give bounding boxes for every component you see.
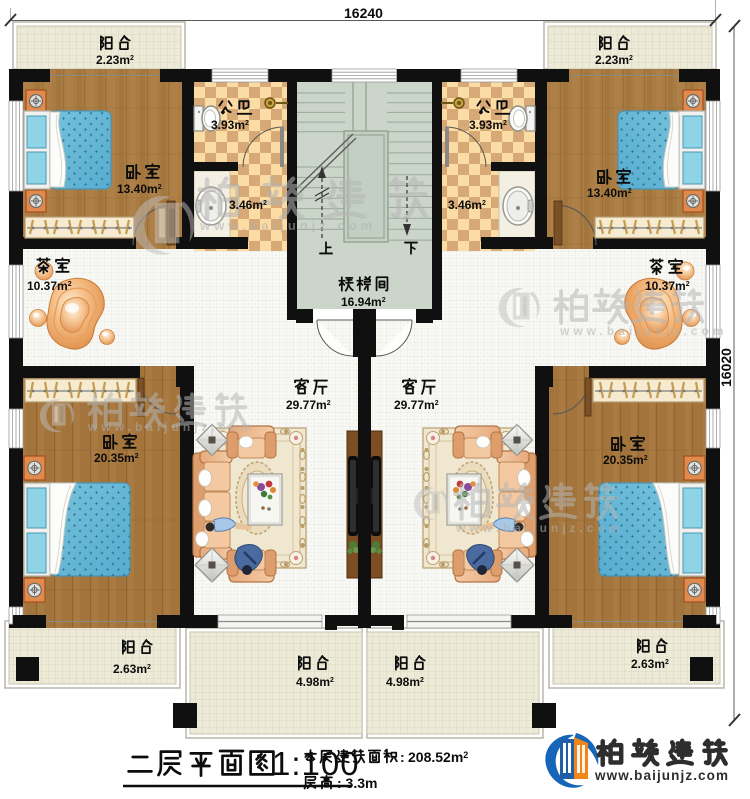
svg-text:2.63m2: 2.63m2 bbox=[631, 657, 669, 671]
svg-text:29.77m2: 29.77m2 bbox=[394, 398, 439, 412]
svg-text:10.37m2: 10.37m2 bbox=[645, 279, 690, 293]
svg-text:www.baijunjz.com: www.baijunjz.com bbox=[594, 768, 729, 783]
svg-text:www.baijunjz.com: www.baijunjz.com bbox=[559, 324, 728, 338]
svg-text:16.94m2: 16.94m2 bbox=[341, 295, 386, 309]
svg-text:13.40m2: 13.40m2 bbox=[587, 186, 632, 200]
svg-text:29.77m2: 29.77m2 bbox=[286, 398, 331, 412]
svg-text:4.98m2: 4.98m2 bbox=[296, 675, 334, 689]
svg-text:3.46m2: 3.46m2 bbox=[229, 198, 267, 212]
svg-text:10.37m2: 10.37m2 bbox=[27, 279, 72, 293]
svg-text:: 3.3m: : 3.3m bbox=[337, 775, 377, 791]
svg-text:3.93m2: 3.93m2 bbox=[211, 118, 249, 132]
svg-text:20.35m2: 20.35m2 bbox=[603, 453, 648, 467]
svg-text::: : bbox=[400, 749, 405, 765]
svg-text:2.63m2: 2.63m2 bbox=[113, 662, 151, 676]
svg-text:13.40m2: 13.40m2 bbox=[117, 182, 162, 196]
svg-text:www.baijunjz.com: www.baijunjz.com bbox=[87, 420, 256, 434]
svg-text:2.23m2: 2.23m2 bbox=[96, 53, 134, 67]
svg-text:208.52m2: 208.52m2 bbox=[408, 749, 468, 765]
svg-text:20.35m2: 20.35m2 bbox=[94, 451, 139, 465]
svg-text:3.46m2: 3.46m2 bbox=[448, 198, 486, 212]
svg-text:16020: 16020 bbox=[718, 348, 734, 387]
svg-text:www.baijunjz.com: www.baijunjz.com bbox=[455, 521, 624, 535]
svg-text:16240: 16240 bbox=[344, 5, 383, 21]
svg-text:2.23m2: 2.23m2 bbox=[595, 53, 633, 67]
svg-text:3.93m2: 3.93m2 bbox=[469, 118, 507, 132]
svg-text:4.98m2: 4.98m2 bbox=[386, 675, 424, 689]
svg-text:www.baijunjz.com: www.baijunjz.com bbox=[199, 218, 376, 233]
